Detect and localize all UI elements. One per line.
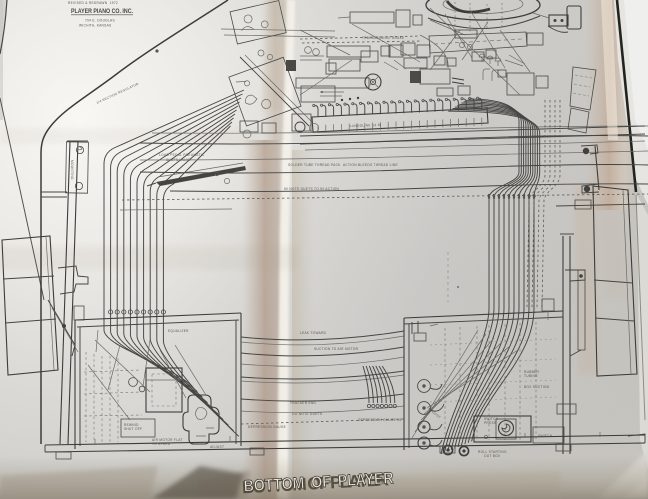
svg-text:TRACKER END: TRACKER END [290,401,317,405]
svg-text:BOX SUCTION: BOX SUCTION [524,385,550,389]
svg-text:TRANSMISSION BRAKE: TRANSMISSION BRAKE [362,36,405,40]
svg-text:704 E. DOUGLAS: 704 E. DOUGLAS [85,19,115,23]
svg-text:SUCTION TO AIR MOTOR: SUCTION TO AIR MOTOR [314,347,359,351]
svg-text:WICHITA, KANSAS: WICHITA, KANSAS [79,24,111,28]
svg-text:LEAK TOWARD: LEAK TOWARD [300,331,327,335]
svg-text:EQUALIZER: EQUALIZER [168,329,189,333]
svg-text:MOUNTING: MOUNTING [70,160,74,180]
svg-text:50 NOTE DUETS TO 50 ACTION: 50 NOTE DUETS TO 50 ACTION [284,187,340,191]
svg-text:DEPRESSION GAUGE #5: DEPRESSION GAUGE #5 [358,418,401,422]
svg-text:ADJUST: ADJUST [210,445,224,449]
svg-text:SHUT OFF: SHUT OFF [124,427,142,431]
svg-text:SWITCH: SWITCH [538,434,553,438]
svg-text:GO NOTE DUETS: GO NOTE DUETS [292,412,322,416]
svg-text:PLAYER PIANO CO. INC.: PLAYER PIANO CO. INC. [71,8,133,15]
svg-text:REVISED & REDRAWN 1972: REVISED & REDRAWN 1972 [68,1,118,5]
svg-text:TUBING: TUBING [524,374,538,378]
svg-text:DEPRESSION GAUGE: DEPRESSION GAUGE [248,425,286,429]
svg-text:LOUD PEDAL PNEUMATIC: LOUD PEDAL PNEUMATIC [159,153,205,157]
svg-text:PRESS: PRESS [484,421,496,425]
svg-text:SOLDER TUBE THREAD PACK ACTIO: SOLDER TUBE THREAD PACK ACTION BLEEDS TH… [288,163,398,167]
